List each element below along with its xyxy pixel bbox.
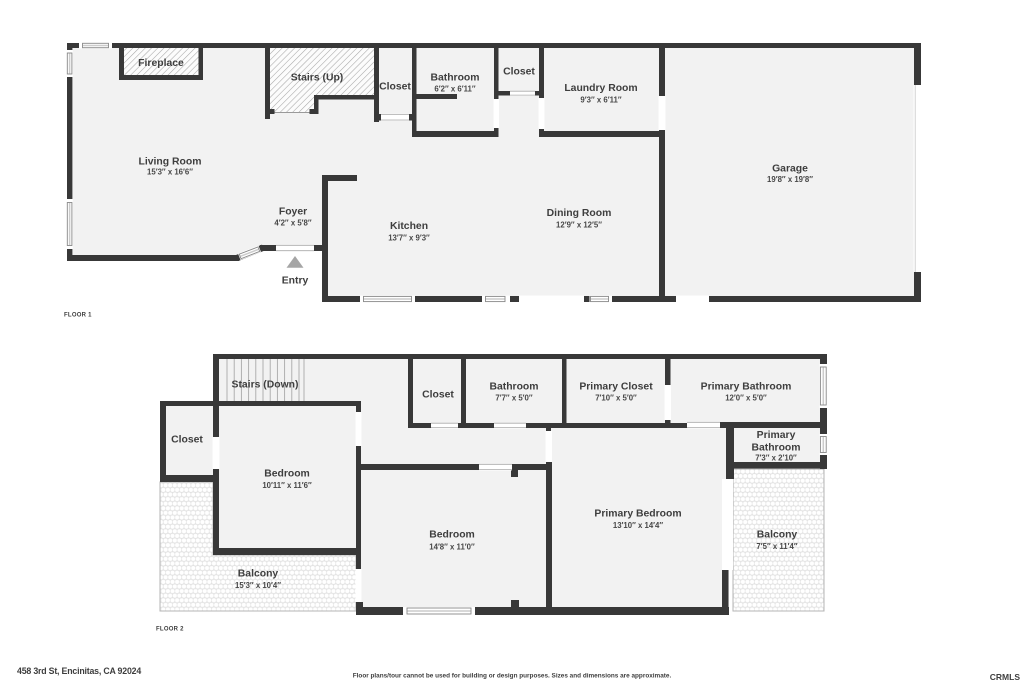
- svg-text:Entry: Entry: [282, 276, 309, 287]
- svg-text:Bedroom: Bedroom: [264, 469, 310, 480]
- svg-text:Living Room: Living Room: [139, 157, 202, 168]
- svg-text:Primary Closet: Primary Closet: [579, 382, 653, 393]
- svg-text:15′3″ x 16′6″: 15′3″ x 16′6″: [147, 168, 193, 177]
- svg-text:12′9″ x 12′5″: 12′9″ x 12′5″: [556, 221, 602, 230]
- svg-text:Closet: Closet: [422, 390, 454, 401]
- svg-text:13′7″ x 9′3″: 13′7″ x 9′3″: [388, 234, 430, 243]
- svg-text:12′0″ x 5′0″: 12′0″ x 5′0″: [725, 394, 767, 403]
- svg-text:Balcony: Balcony: [238, 569, 279, 580]
- svg-text:Primary: Primary: [757, 430, 796, 441]
- svg-text:Bathroom: Bathroom: [489, 382, 538, 393]
- svg-text:7′5″ x 11′4″: 7′5″ x 11′4″: [756, 542, 797, 551]
- svg-text:Balcony: Balcony: [757, 530, 798, 541]
- svg-text:Closet: Closet: [171, 435, 203, 446]
- svg-text:Dining Room: Dining Room: [547, 208, 612, 219]
- svg-text:15′3″ x 10′4″: 15′3″ x 10′4″: [235, 581, 281, 590]
- svg-text:Kitchen: Kitchen: [390, 221, 428, 232]
- svg-text:Stairs (Up): Stairs (Up): [291, 73, 344, 84]
- svg-text:Stairs (Down): Stairs (Down): [232, 380, 299, 391]
- svg-text:6′2″ x 6′11″: 6′2″ x 6′11″: [434, 85, 475, 94]
- svg-text:Primary Bedroom: Primary Bedroom: [594, 509, 681, 520]
- svg-text:Bathroom: Bathroom: [751, 443, 800, 454]
- svg-text:Foyer: Foyer: [279, 207, 307, 218]
- svg-text:Primary Bathroom: Primary Bathroom: [701, 382, 792, 393]
- svg-text:7′10″ x 5′0″: 7′10″ x 5′0″: [595, 394, 637, 403]
- svg-text:CRMLS: CRMLS: [990, 672, 1021, 682]
- svg-text:9′3″ x 6′11″: 9′3″ x 6′11″: [580, 96, 621, 105]
- svg-text:458 3rd St, Encinitas, CA 9202: 458 3rd St, Encinitas, CA 92024: [17, 666, 141, 676]
- svg-text:7′3″ x 2′10″: 7′3″ x 2′10″: [755, 454, 797, 463]
- svg-text:Bathroom: Bathroom: [430, 73, 479, 84]
- svg-text:FLOOR 1: FLOOR 1: [64, 313, 92, 319]
- svg-text:14′8″ x 11′0″: 14′8″ x 11′0″: [429, 543, 475, 552]
- svg-text:19′8″ x 19′8″: 19′8″ x 19′8″: [767, 175, 813, 184]
- svg-text:Closet: Closet: [503, 67, 535, 78]
- svg-text:Fireplace: Fireplace: [138, 58, 184, 69]
- svg-text:7′7″ x 5′0″: 7′7″ x 5′0″: [495, 394, 532, 403]
- svg-text:13′10″ x 14′4″: 13′10″ x 14′4″: [613, 521, 663, 530]
- svg-text:FLOOR 2: FLOOR 2: [156, 627, 184, 633]
- svg-text:Closet: Closet: [379, 82, 411, 93]
- svg-text:Laundry Room: Laundry Room: [564, 83, 637, 94]
- svg-text:Garage: Garage: [772, 164, 808, 175]
- svg-text:10′11″ x 11′6″: 10′11″ x 11′6″: [262, 481, 312, 490]
- svg-text:4′2″ x 5′8″: 4′2″ x 5′8″: [274, 219, 311, 228]
- svg-text:Floor plans/tour cannot be use: Floor plans/tour cannot be used for buil…: [353, 673, 672, 680]
- svg-text:Bedroom: Bedroom: [429, 530, 475, 541]
